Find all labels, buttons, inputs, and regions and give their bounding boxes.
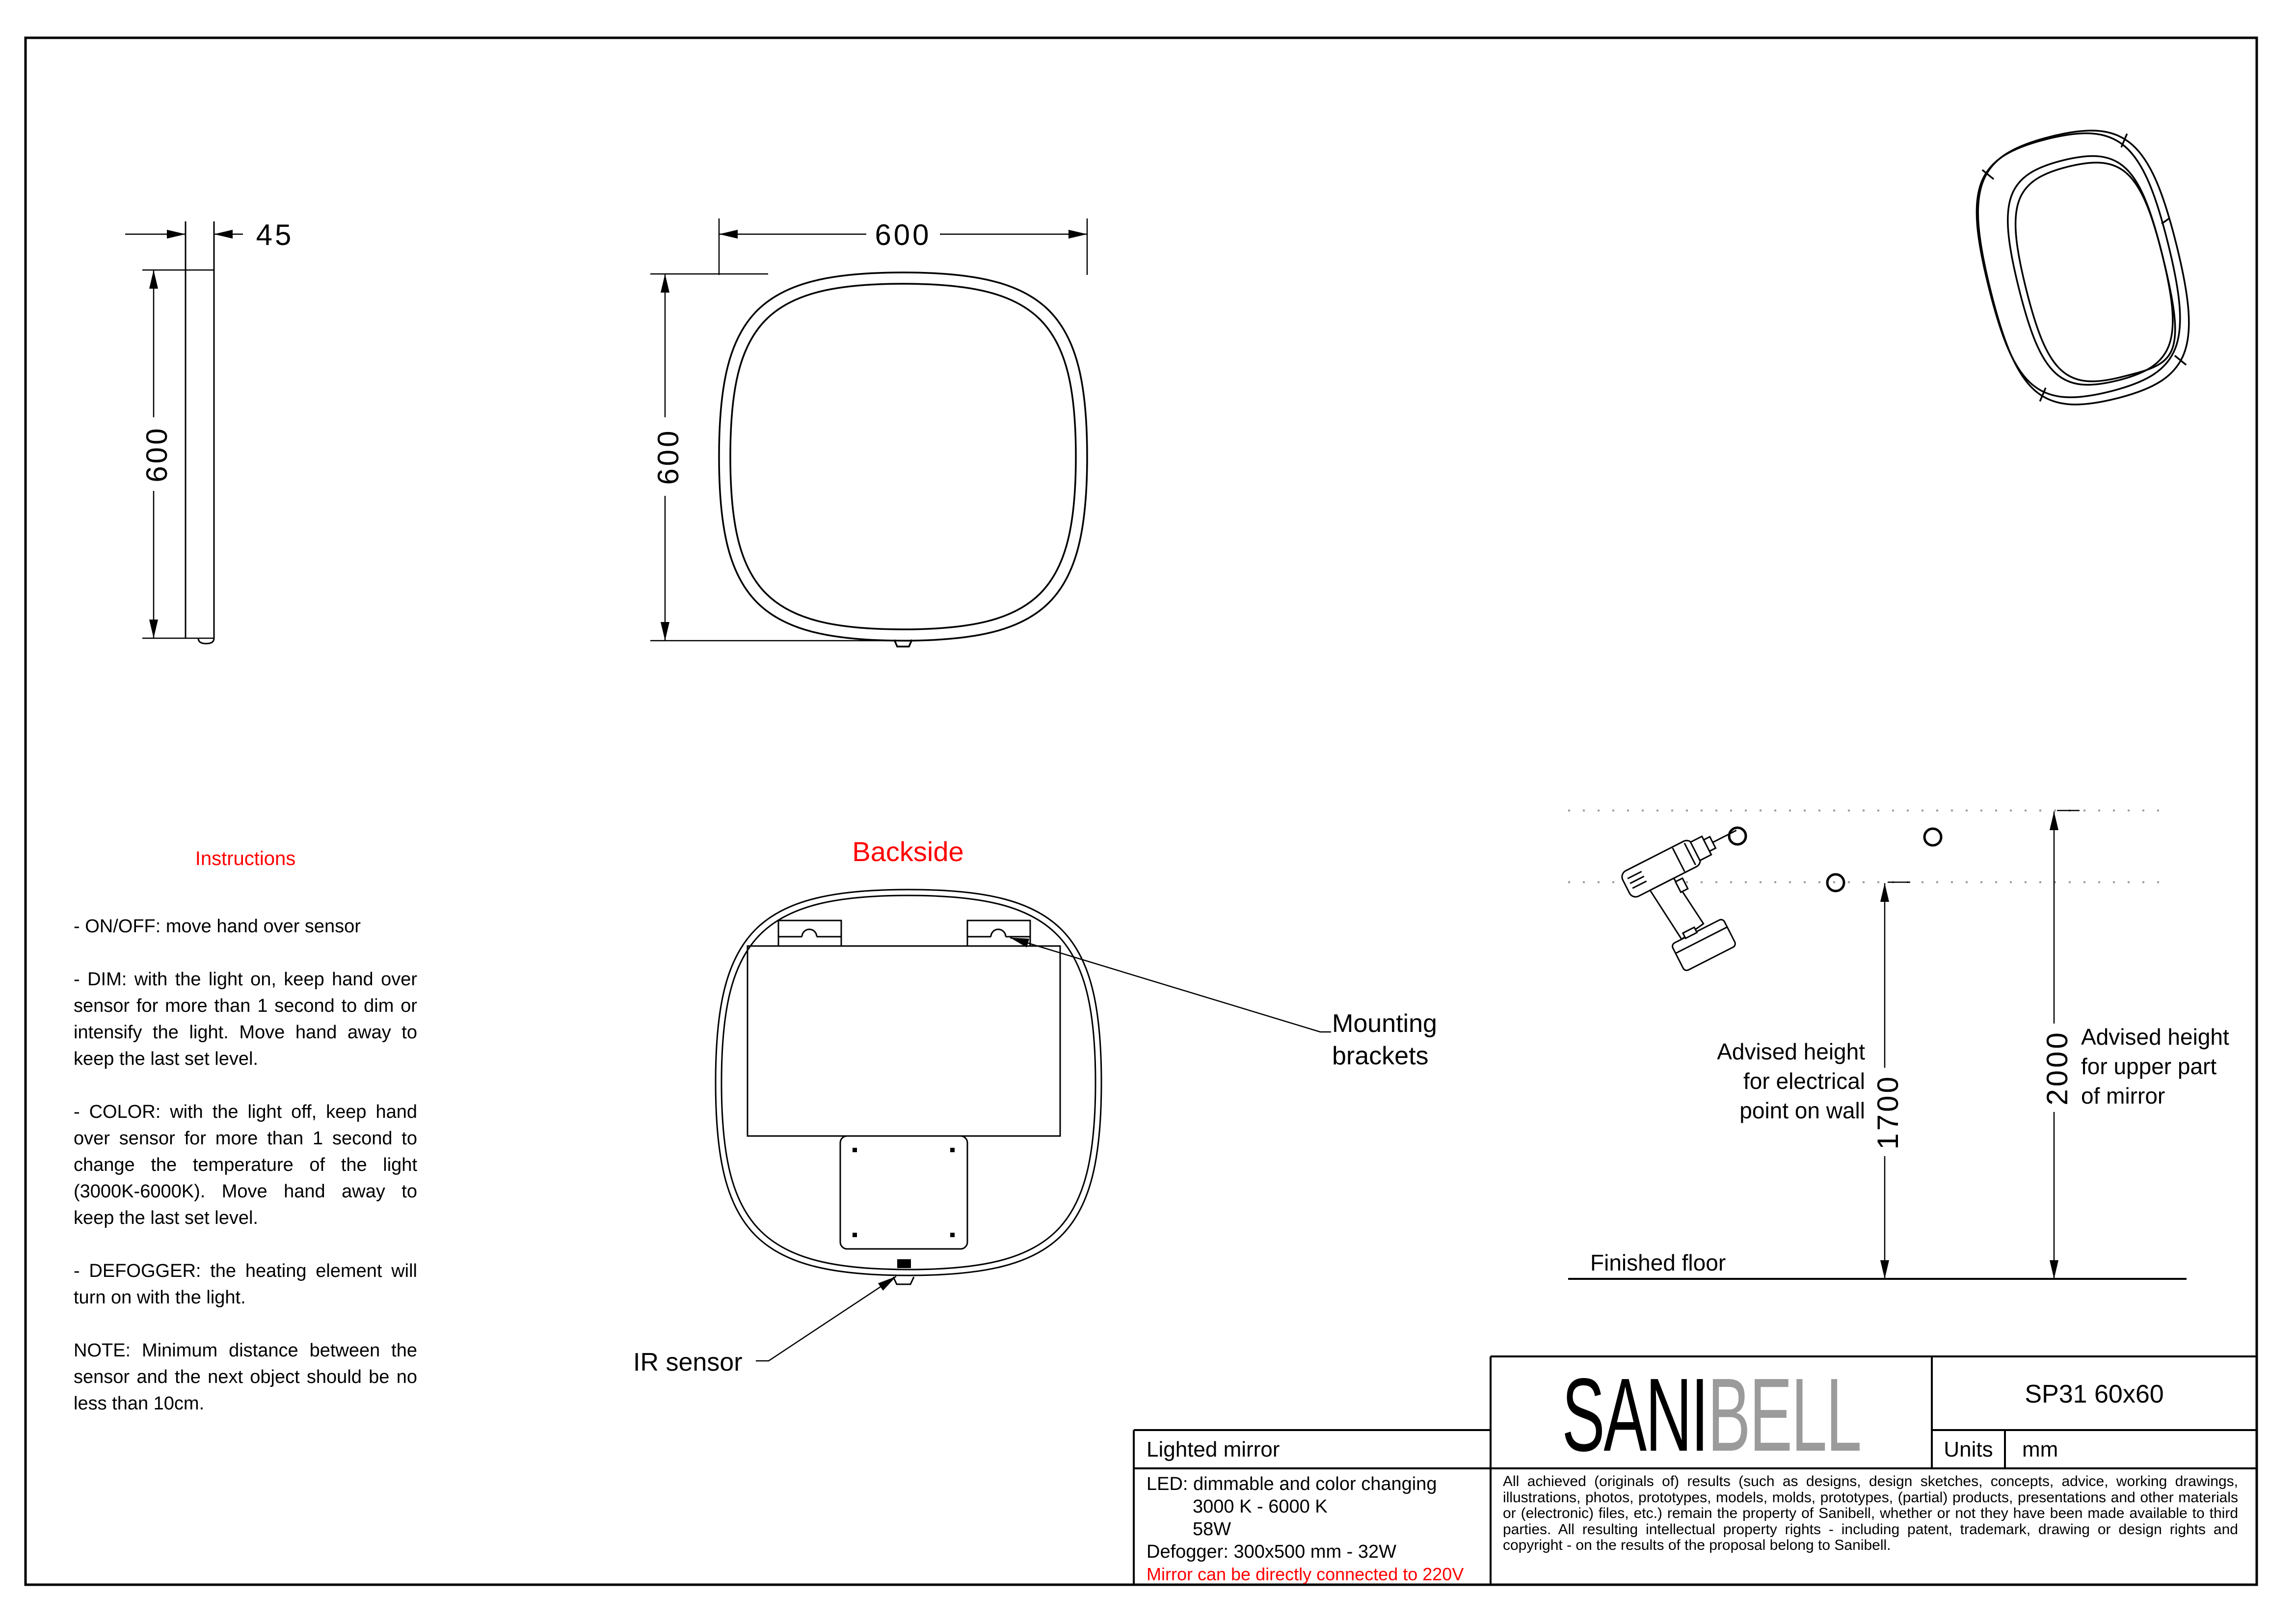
spec-list: LED: dimmable and color changing 3000 K … <box>1147 1473 1485 1586</box>
spec-defogger: Defogger: 300x500 mm - 32W <box>1147 1541 1485 1563</box>
drill-icon <box>1620 818 1783 978</box>
instruction-dim: - DIM: with the light on, keep hand over… <box>74 966 417 1072</box>
drill-hole-3 <box>1827 874 1844 891</box>
side-ir-sensor-bump <box>198 638 214 644</box>
drawing-sheet: 45 600 600 600 1700 2000 Advised height … <box>0 0 2296 1623</box>
backside-title: Backside <box>810 836 1006 867</box>
dim-text-45: 45 <box>243 218 307 252</box>
units-value: mm <box>2022 1437 2058 1462</box>
front-view <box>650 218 1087 647</box>
dim-text-front-height: 600 <box>651 420 679 493</box>
upper-height-note: Advised height for upper part of mirror <box>2081 1022 2296 1110</box>
dim-text-side-600: 600 <box>140 417 167 491</box>
instruction-defogger: - DEFOGGER: the heating element will tur… <box>74 1258 417 1311</box>
mounting-bracket-left <box>778 920 841 946</box>
brand-logo-gray: BELL <box>1708 1355 1861 1475</box>
perspective-view <box>1957 113 2209 422</box>
mounting-brackets-label: Mounting brackets <box>1332 1007 1437 1072</box>
instruction-onoff: - ON/OFF: move hand over sensor <box>74 913 417 940</box>
ir-sensor <box>897 1259 911 1268</box>
model-number: SP31 60x60 <box>1932 1380 2257 1409</box>
dim-front-height <box>650 274 907 641</box>
legal-text: All achieved (originals of) results (suc… <box>1503 1474 2238 1554</box>
brand-logo-black: SANI <box>1562 1355 1708 1475</box>
back-panel <box>748 946 1060 1136</box>
leader-lines <box>756 938 1331 1361</box>
dim-text-2000: 2000 <box>2040 1025 2068 1110</box>
drill-hole-2 <box>1924 829 1941 845</box>
spec-kelvin: 3000 K - 6000 K <box>1147 1495 1485 1518</box>
spec-wattage: 58W <box>1147 1518 1485 1541</box>
defogger-plate <box>840 1136 967 1249</box>
backside-view <box>716 890 1331 1361</box>
mirror-outline-inner <box>730 284 1076 629</box>
drill-hole-1 <box>1729 828 1746 844</box>
instruction-note: NOTE: Minimum distance between the senso… <box>74 1337 417 1417</box>
units-label: Units <box>1932 1437 2005 1462</box>
product-type: Lighted mirror <box>1147 1437 1280 1462</box>
dim-text-1700: 1700 <box>1871 1069 1898 1155</box>
ir-sensor-label: IR sensor <box>633 1346 743 1379</box>
dim-text-front-width: 600 <box>866 218 940 252</box>
instruction-color: - COLOR: with the light off, keep hand o… <box>74 1099 417 1231</box>
spec-led: LED: dimmable and color changing <box>1147 1473 1485 1495</box>
instructions-block: Instructions - ON/OFF: move hand over se… <box>74 845 417 1443</box>
mirror-outline-outer <box>719 272 1087 641</box>
spec-warning: Mirror can be directly connected to 220V <box>1147 1563 1485 1586</box>
instructions-title: Instructions <box>74 845 417 872</box>
finished-floor-label: Finished floor <box>1590 1248 1726 1277</box>
brand-logo: SANIBELL <box>1575 1363 1848 1466</box>
electrical-height-note: Advised height for electrical point on w… <box>1639 1037 1865 1125</box>
